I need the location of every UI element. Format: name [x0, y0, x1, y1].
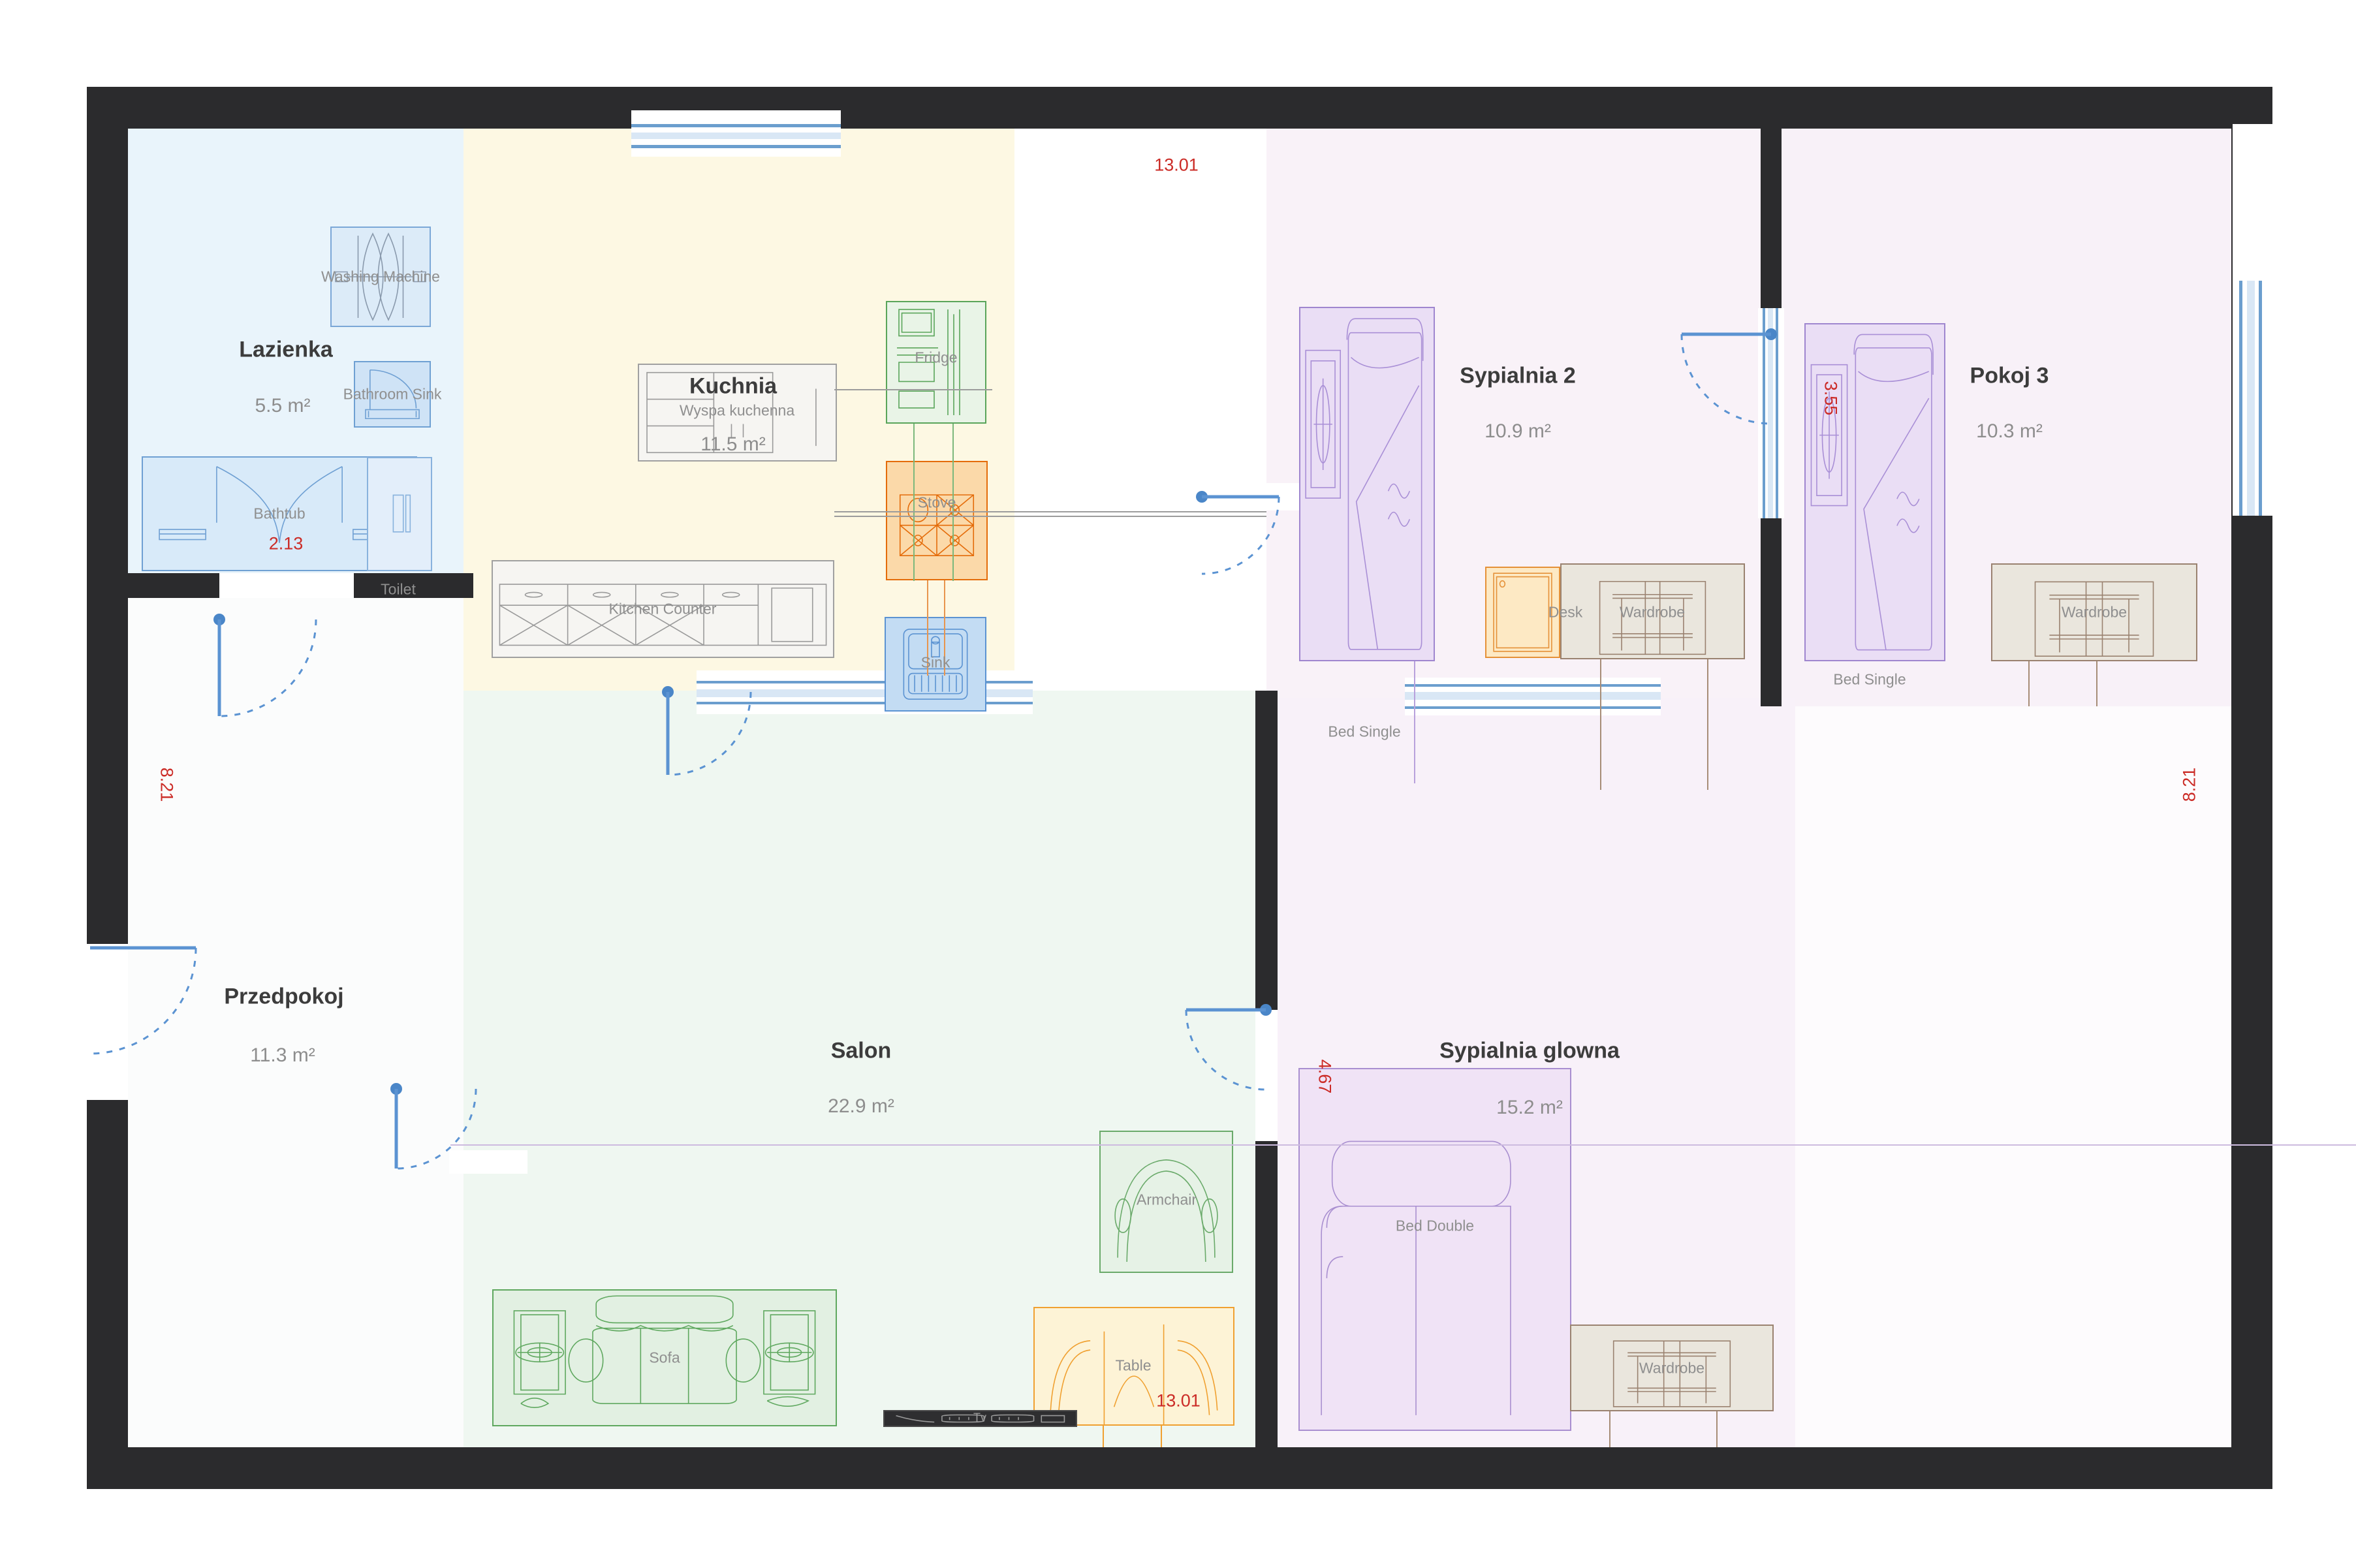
bed-double-drawing [1300, 1069, 1570, 1430]
wardrobe-pokoj3-label: Wardrobe [2062, 604, 2127, 621]
kitchen-counter-label: Kitchen Counter [609, 601, 717, 618]
table-label: Table [1116, 1357, 1152, 1375]
wall-bottom [87, 1447, 2272, 1489]
bed-single-sypialnia2[interactable] [1299, 307, 1435, 661]
bed-single-drawing [1300, 308, 1434, 660]
dimension-right-wall: 8.21 [2180, 768, 2200, 802]
room-area-salon: 22.9 m² [828, 1095, 894, 1118]
room-title-salon: Salon [831, 1039, 892, 1064]
floor-plan: Lazienka 5.5 m² Kuchnia 11.5 m² Sypialni… [0, 0, 2356, 1568]
toilet-drawing [368, 458, 431, 570]
room-area-kuchnia: 11.5 m² [700, 433, 765, 456]
room-title-kuchnia: Kuchnia [689, 374, 777, 400]
fridge-label: Fridge [915, 349, 957, 367]
sofa-label: Sofa [649, 1349, 680, 1367]
window-sypialnia2-pokoj3[interactable] [1758, 308, 1784, 518]
room-area-sypialnia2: 10.9 m² [1484, 420, 1551, 443]
bed-double[interactable] [1298, 1068, 1571, 1431]
wardrobe-sypialnia2-label: Wardrobe [1620, 604, 1685, 621]
dimension-bathtub: 2.13 [269, 534, 304, 554]
bed-double-label: Bed Double [1396, 1217, 1474, 1235]
kitchen-sink-label: Sink [921, 654, 950, 672]
washing-machine-label: Washing Machine [321, 268, 440, 286]
kitchen-island-label: Wyspa kuchenna [680, 402, 794, 420]
stove-label: Stove [918, 494, 956, 512]
entry-door-opening [87, 944, 128, 1100]
bed-single-pokoj3[interactable] [1804, 323, 1945, 661]
room-area-przedpokoj: 11.3 m² [250, 1044, 315, 1067]
tv-label: Tv [973, 1411, 986, 1425]
przedpokoj-door-opening [449, 1150, 527, 1174]
armchair-label: Armchair [1137, 1191, 1197, 1209]
window-sypialnia2-bottom[interactable] [1405, 678, 1661, 715]
dimension-sypialnia-glowna: 4.67 [1315, 1059, 1335, 1094]
wardrobe-sypialnia-glowna-label: Wardrobe [1639, 1360, 1704, 1377]
window-top[interactable] [631, 110, 841, 157]
dimension-left-wall: 8.21 [157, 768, 177, 802]
toilet[interactable] [367, 457, 432, 571]
wall-top [87, 87, 2272, 129]
bathtub-label: Bathtub [253, 505, 305, 523]
bed-single-drawing [1806, 324, 1944, 660]
room-area-lazienka: 5.5 m² [255, 395, 310, 417]
room-right-strip [1795, 706, 2231, 1447]
bed-single-pokoj3-label: Bed Single [1833, 671, 1906, 689]
room-title-sypialnia-glowna: Sypialnia glowna [1439, 1039, 1620, 1064]
room-title-pokoj3: Pokoj 3 [1970, 364, 2049, 389]
room-title-przedpokoj: Przedpokoj [224, 984, 343, 1010]
salon-sg-door-opening [1255, 1010, 1278, 1141]
room-area-sypialnia-glowna: 15.2 m² [1496, 1097, 1563, 1119]
toilet-label: Toilet [381, 581, 416, 599]
room-area-pokoj3: 10.3 m² [1976, 420, 2043, 443]
wall-left [87, 87, 128, 1489]
dimension-table: 13.01 [1156, 1391, 1201, 1411]
stove-drawing [887, 462, 986, 579]
dimension-pokoj3-bed: 3.55 [1821, 381, 1841, 416]
room-przedpokoj[interactable] [128, 598, 463, 1447]
bed-single-sypialnia2-label: Bed Single [1328, 723, 1400, 741]
bathroom-door-opening [219, 573, 354, 598]
bathroom-sink-label: Bathroom Sink [343, 386, 442, 403]
room-title-lazienka: Lazienka [239, 337, 333, 363]
room-title-sypialnia2: Sypialnia 2 [1460, 364, 1576, 389]
dimension-top: 13.01 [1154, 155, 1199, 176]
desk-label: Desk [1548, 604, 1582, 621]
window-right[interactable] [2233, 124, 2272, 516]
stove[interactable] [886, 461, 988, 580]
